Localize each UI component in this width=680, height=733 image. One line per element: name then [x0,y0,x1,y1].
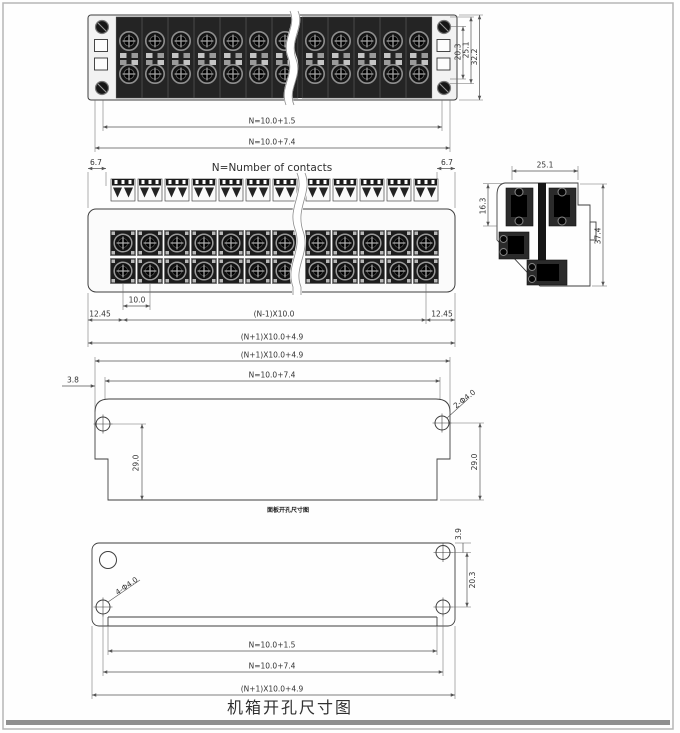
dim-plan-margin-left: 12.45 [89,310,111,319]
dim-plan-overall: (N+1)X10.0+4.9 [241,333,304,342]
plan-wire-entry-row [111,179,438,201]
dim-side-width: 25.1 [537,161,554,170]
dim-plan-end-right: 6.7 [441,158,453,167]
chassis-right-dimensions: 3.9 20.3 [452,528,477,607]
contacts-note: N=Number of contacts [212,162,332,174]
dim-front-width-outer: N=10.0+7.4 [249,138,296,147]
chassis-hole-top-right [434,543,453,562]
plan-span-dimensions: 12.45 (N-1)X10.0 12.45 (N+1)X10.0+4.9 [88,284,455,347]
dim-chassis-overall: (N+1)X10.0+4.9 [241,685,304,694]
dim-cutout-holes: 2-Φ4.0 [452,388,478,411]
dim-chassis-width-mid: N=10.0+7.4 [249,662,296,671]
cutout-hole-callout: 2-Φ4.0 [447,388,477,418]
footer-bar [6,720,670,725]
dim-front-width-inner: N=10.0+1.5 [249,117,296,126]
chassis-width-dimensions: N=10.0+1.5 N=10.0+7.4 (N+1)X10.0+4.9 [92,614,455,699]
side-section-view: 25.1 16.3 37.4 [479,161,608,287]
dim-chassis-holes: 4-Φ4.0 [114,575,140,597]
dim-cutout-inner: N=10.0+7.4 [249,371,296,380]
dim-plan-end-left: 6.7 [90,158,102,167]
terminal-block-drawing: 20.3 25.1 32.2 N=10.0+1.5 N=10.0+7.4 N=N… [0,0,680,733]
chassis-hole-bottom-right [434,598,453,617]
chassis-caption: 机箱开孔尺寸图 [227,698,353,717]
dim-cutout-height-left: 29.0 [132,454,141,471]
chassis-hole-callout: 4-Φ4.0 [108,575,140,602]
chassis-hole-bottom-left [94,598,113,617]
plan-view: N=Number of contacts 6.7 6.7 [88,158,455,347]
side-contact-parts [499,183,576,285]
dim-plan-margin-right: 12.45 [431,310,453,319]
page-border [3,3,673,729]
panel-cutout-caption: 面板开孔尺寸图 [267,506,309,514]
dim-cutout-edge: 3.8 [67,376,79,385]
cutout-height-dimensions: 29.0 29.0 [110,423,484,500]
dim-plan-span: (N-1)X10.0 [254,310,295,319]
front-view: 20.3 25.1 32.2 N=10.0+1.5 N=10.0+7.4 [88,11,483,152]
front-width-dimensions: N=10.0+1.5 N=10.0+7.4 [95,100,450,152]
panel-cutout-view: (N+1)X10.0+4.9 N=10.0+7.4 3.8 2-Φ4.0 29.… [62,351,484,515]
front-terminal-columns [116,17,432,98]
dim-side-upper: 16.3 [479,197,488,214]
dim-chassis-hole-span: 20.3 [468,571,477,588]
dim-front-height-outer: 32.2 [470,48,479,65]
technical-drawing-page: 20.3 25.1 32.2 N=10.0+1.5 N=10.0+7.4 N=N… [0,0,680,733]
chassis-corner-circle [100,552,117,569]
dim-side-height: 37.4 [594,227,603,244]
dim-chassis-top: 3.9 [454,528,463,540]
dim-cutout-height-right: 29.0 [470,453,479,470]
dim-plan-pitch: 10.0 [129,296,146,305]
dim-cutout-overall: (N+1)X10.0+4.9 [241,351,304,360]
dim-chassis-width-inner: N=10.0+1.5 [249,641,296,650]
chassis-cutout-view: 4-Φ4.0 3.9 20.3 N=10.0+1.5 N=10.0+7.4 (N… [92,528,477,717]
cutout-hole-left [94,415,113,434]
